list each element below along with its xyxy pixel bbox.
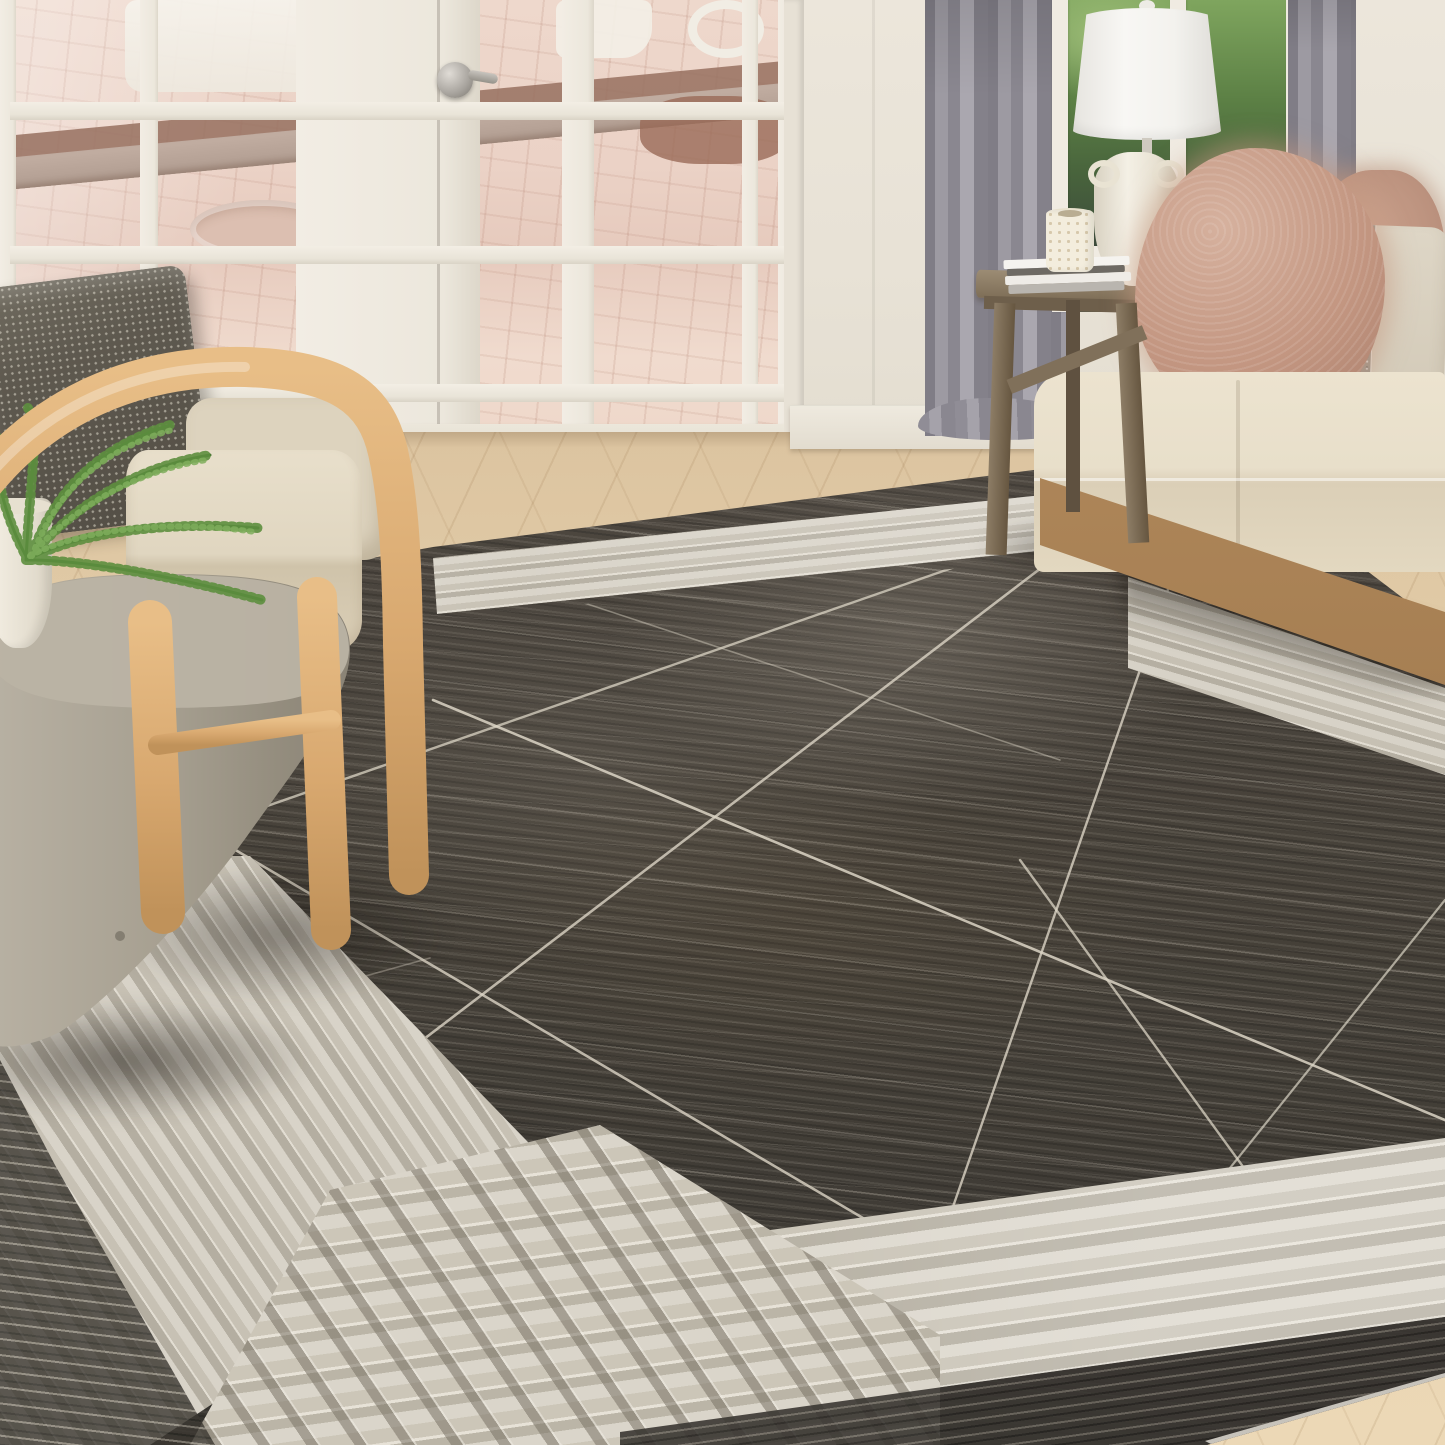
chair-front-left-leg: [150, 622, 163, 912]
candle-holder-opening: [1058, 210, 1082, 217]
sofa-cushion-seam: [1236, 380, 1240, 550]
living-room-photo: [0, 0, 1445, 1445]
sofa-cushion-piping: [1034, 478, 1445, 481]
chair-front-right-leg: [317, 597, 331, 930]
chair-arm-rail: [0, 367, 409, 875]
side-table-rear-leg: [1066, 300, 1080, 512]
candle-holder: [1046, 210, 1094, 272]
